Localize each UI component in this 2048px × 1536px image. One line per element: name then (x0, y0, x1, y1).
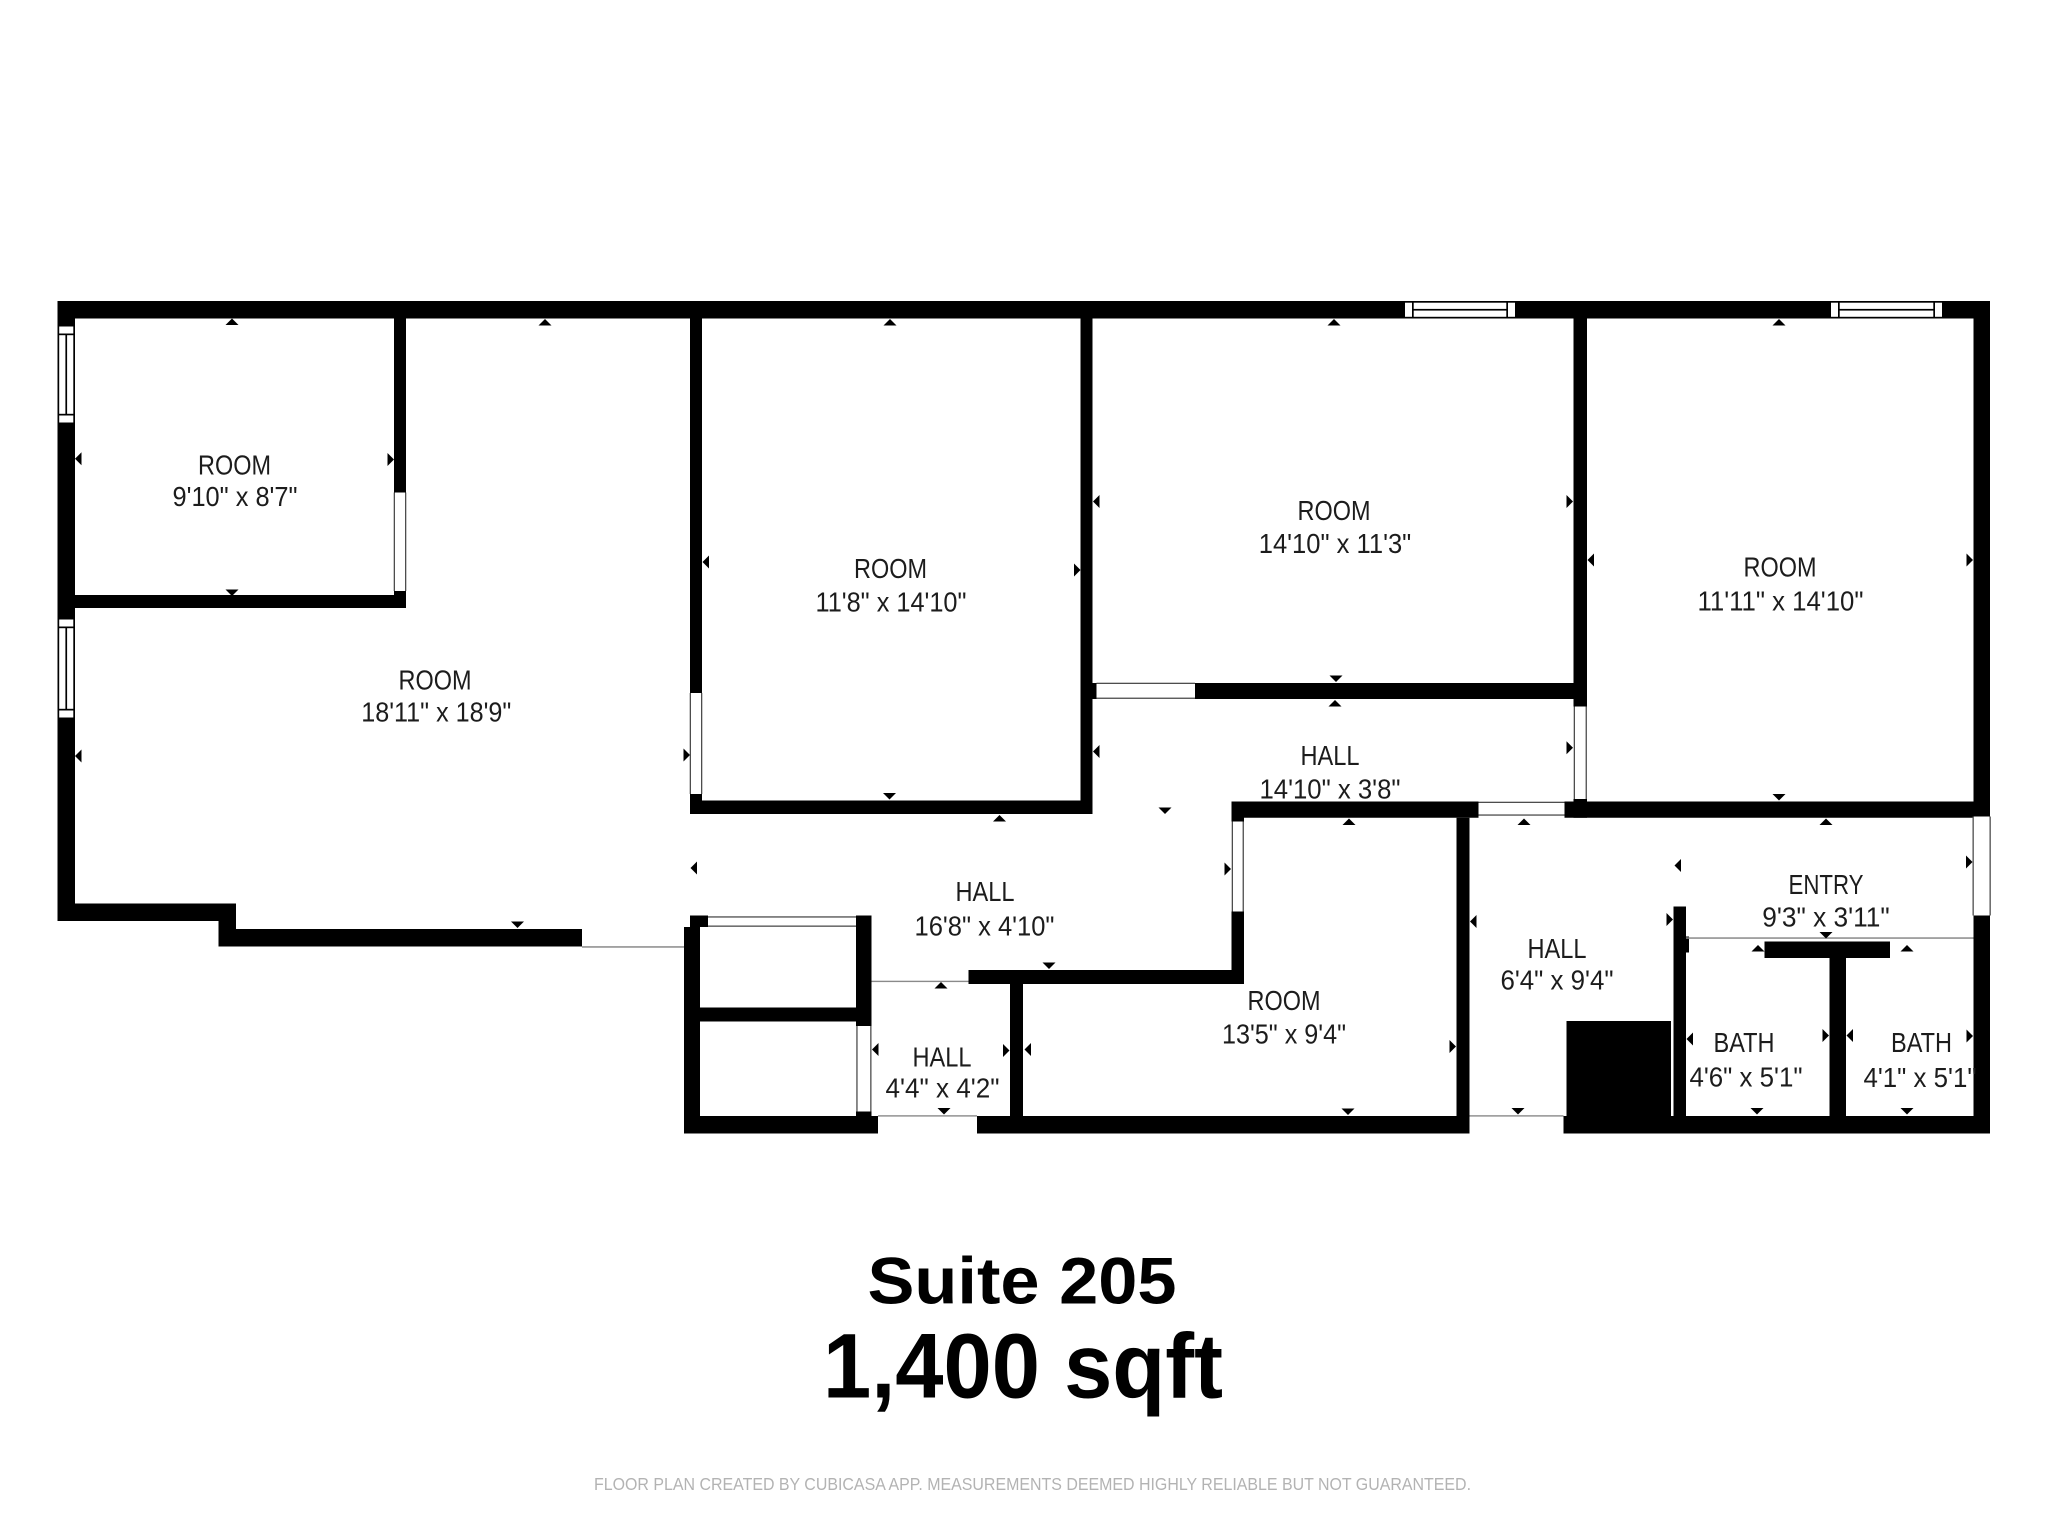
svg-text:16'8" x 4'10": 16'8" x 4'10" (915, 911, 1055, 942)
svg-text:ROOM: ROOM (1744, 552, 1817, 583)
svg-text:ROOM: ROOM (1298, 495, 1371, 526)
svg-text:6'4" x 9'4": 6'4" x 9'4" (1501, 965, 1614, 996)
svg-text:FLOOR PLAN CREATED BY CUBICASA: FLOOR PLAN CREATED BY CUBICASA APP. MEAS… (594, 1474, 1471, 1494)
svg-text:13'5" x 9'4": 13'5" x 9'4" (1222, 1019, 1346, 1050)
svg-text:4'6" x 5'1": 4'6" x 5'1" (1690, 1062, 1803, 1093)
svg-text:14'10" x 11'3": 14'10" x 11'3" (1259, 528, 1412, 559)
svg-text:HALL: HALL (1301, 740, 1360, 771)
svg-text:ROOM: ROOM (854, 553, 927, 584)
svg-text:HALL: HALL (1528, 933, 1587, 964)
svg-text:HALL: HALL (913, 1042, 972, 1073)
svg-text:9'3" x 3'11": 9'3" x 3'11" (1762, 902, 1890, 933)
svg-text:11'8" x 14'10": 11'8" x 14'10" (816, 587, 967, 618)
svg-text:ROOM: ROOM (198, 450, 271, 481)
svg-text:4'4" x 4'2": 4'4" x 4'2" (886, 1073, 1000, 1104)
svg-text:11'11" x 14'10": 11'11" x 14'10" (1698, 586, 1864, 617)
svg-text:14'10" x 3'8": 14'10" x 3'8" (1260, 774, 1401, 805)
svg-text:HALL: HALL (956, 876, 1015, 907)
svg-text:Suite 205: Suite 205 (868, 1244, 1177, 1318)
svg-text:4'1" x 5'1": 4'1" x 5'1" (1864, 1062, 1977, 1093)
svg-text:1,400 sqft: 1,400 sqft (823, 1316, 1223, 1418)
svg-text:BATH: BATH (1891, 1027, 1952, 1058)
svg-text:9'10" x 8'7": 9'10" x 8'7" (173, 481, 298, 512)
svg-text:ROOM: ROOM (399, 665, 472, 696)
svg-text:18'11" x 18'9": 18'11" x 18'9" (361, 697, 511, 728)
svg-text:ROOM: ROOM (1248, 985, 1321, 1016)
svg-text:ENTRY: ENTRY (1789, 869, 1864, 900)
svg-text:BATH: BATH (1714, 1027, 1775, 1058)
